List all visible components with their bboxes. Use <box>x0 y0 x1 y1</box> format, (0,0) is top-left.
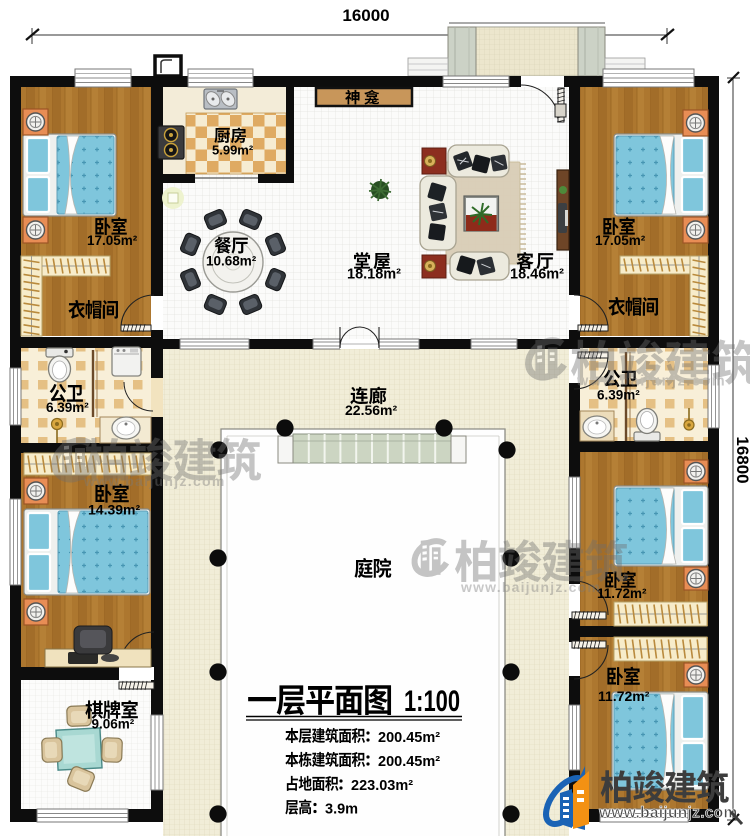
svg-text:9.06m²: 9.06m² <box>92 717 135 732</box>
svg-text:www.baijunjz.com: www.baijunjz.com <box>598 805 738 822</box>
svg-text:200.45m²: 200.45m² <box>378 730 440 746</box>
svg-text:www.baijunjz.com: www.baijunjz.com <box>460 579 601 595</box>
svg-text:22.56m²: 22.56m² <box>345 402 397 418</box>
svg-text:16000: 16000 <box>342 6 389 25</box>
svg-text:17.05m²: 17.05m² <box>87 233 138 248</box>
svg-text:5.99m²: 5.99m² <box>212 143 254 158</box>
svg-text:1:100: 1:100 <box>404 685 460 718</box>
svg-text:www.baijunjz.com: www.baijunjz.com <box>83 473 226 489</box>
svg-text:10.68m²: 10.68m² <box>206 254 257 269</box>
svg-text:6.39m²: 6.39m² <box>597 388 640 403</box>
svg-text:11.72m²: 11.72m² <box>598 688 650 704</box>
svg-text:16800: 16800 <box>733 436 750 483</box>
svg-text:18.18m²: 18.18m² <box>347 267 401 283</box>
svg-text:14.39m²: 14.39m² <box>88 502 140 518</box>
svg-text:11.72m²: 11.72m² <box>597 586 647 601</box>
svg-text:200.45m²: 200.45m² <box>378 754 440 770</box>
svg-text:18.46m²: 18.46m² <box>510 267 564 283</box>
svg-text:17.05m²: 17.05m² <box>595 233 646 248</box>
svg-text:6.39m²: 6.39m² <box>46 400 89 415</box>
svg-text:www.baijunjz.com: www.baijunjz.com <box>576 374 726 390</box>
svg-text:223.03m²: 223.03m² <box>351 778 413 794</box>
svg-text:3.9m: 3.9m <box>325 802 358 818</box>
